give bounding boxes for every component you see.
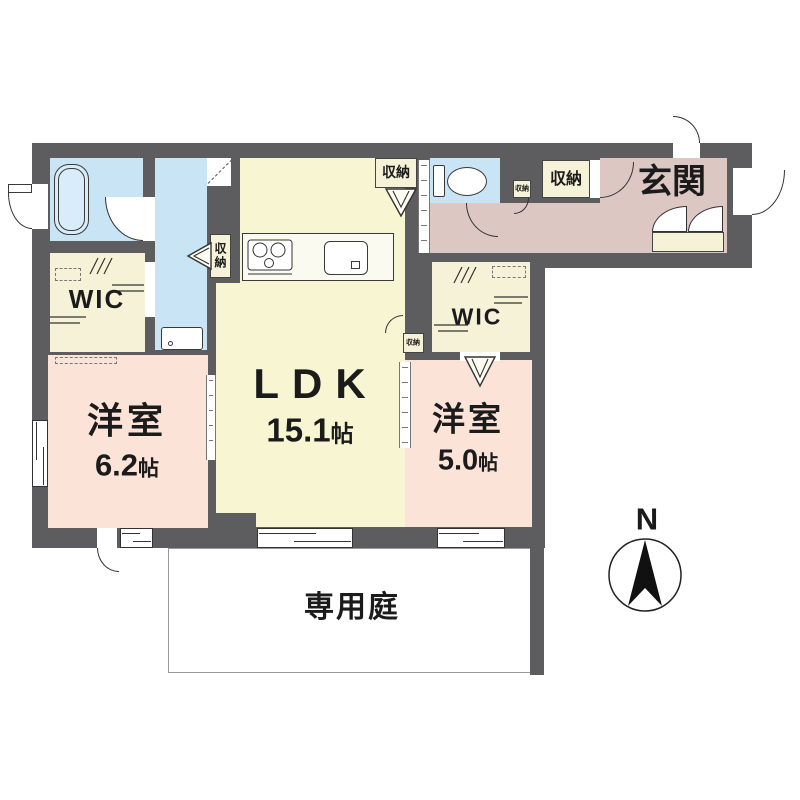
toilet-bowl [447, 167, 487, 196]
room-western-6-2 [48, 355, 208, 528]
size-unit: 帖 [478, 453, 498, 475]
wic-left-label: WIC [69, 286, 126, 312]
storage-label-hall-small: 収納 [515, 186, 529, 193]
entrance-top-door-gap [673, 143, 700, 158]
western-room-1-size: 6.2帖 [95, 450, 159, 481]
washbasin [161, 327, 203, 350]
folding-door-icon [186, 241, 212, 271]
dashed-open-icon [208, 159, 233, 184]
kitchen-stove-icon [247, 239, 293, 277]
room-ldk [216, 158, 405, 527]
window [437, 528, 505, 548]
size-number: 5.0 [438, 445, 478, 477]
size-unit: 帖 [138, 458, 159, 481]
size-number: 15.1 [266, 412, 330, 449]
shelf-dashed [492, 266, 526, 278]
closet-dashed [55, 357, 117, 364]
window [257, 528, 353, 548]
west62-garden-door-gap [97, 528, 117, 548]
western-room-1-label: 洋室 [87, 403, 167, 439]
washbasin-drain-icon [168, 341, 173, 346]
compass [598, 530, 694, 622]
sliding-door-ldk-west50 [399, 362, 411, 448]
service-door-leaf [8, 184, 32, 193]
storage-label-ldk-top: 収納 [382, 165, 410, 179]
wall-ldk-step [216, 513, 256, 529]
garden-label: 専用庭 [304, 593, 400, 623]
hanger-pipe-icon [450, 265, 478, 285]
folding-door-icon [463, 356, 497, 388]
wall-garden-side [530, 548, 544, 675]
storage-label-ldk-small: 収納 [406, 340, 420, 347]
west62-garden-door-arc [97, 548, 119, 572]
bathtub-inner [58, 168, 85, 231]
sink-faucet-icon [351, 261, 360, 269]
north-arrow-icon [628, 540, 662, 606]
hanger-pipe-icon [86, 256, 114, 276]
front-door-gap [733, 168, 752, 215]
bathtub [54, 164, 89, 235]
front-door-arc [752, 170, 785, 215]
service-door-arc [8, 193, 32, 229]
shoe-cabinet [652, 232, 724, 252]
service-door-gap [32, 184, 48, 229]
refrigerator-alcove [207, 158, 231, 186]
folding-door-icon [384, 188, 418, 218]
western-room-2-label: 洋室 [432, 403, 504, 436]
wic-right-label: WIC [452, 306, 503, 329]
floor-plan: LDK 15.1帖 洋室 6.2帖 洋室 5.0帖 玄関 WIC WIC 収納 … [0, 0, 800, 800]
hall-closet-door-leaf [590, 160, 600, 198]
size-number: 6.2 [95, 448, 138, 483]
size-unit: 帖 [331, 421, 354, 447]
window [120, 528, 153, 548]
kitchen-sink [324, 241, 368, 275]
bathroom-door-leaf [143, 197, 155, 241]
wic-left-opening [145, 262, 155, 317]
sliding-door-ldk-hall [418, 160, 430, 253]
ldk-label: LDK [253, 363, 378, 405]
shelf-lines-icon [50, 314, 86, 326]
storage-label-washroom: 収納 [214, 242, 226, 270]
storage-label-hall-closet: 収納 [550, 172, 582, 188]
sliding-door-ldk-west62 [206, 375, 216, 460]
entrance-label: 玄関 [638, 165, 706, 199]
entrance-top-door-arc [673, 116, 700, 143]
compass-north-label: N [636, 504, 658, 535]
ldk-size: 15.1帖 [266, 414, 353, 447]
toilet-tank [433, 165, 445, 197]
window [32, 420, 48, 487]
western-room-2-size: 5.0帖 [438, 447, 498, 476]
shelf-dashed [55, 268, 81, 281]
